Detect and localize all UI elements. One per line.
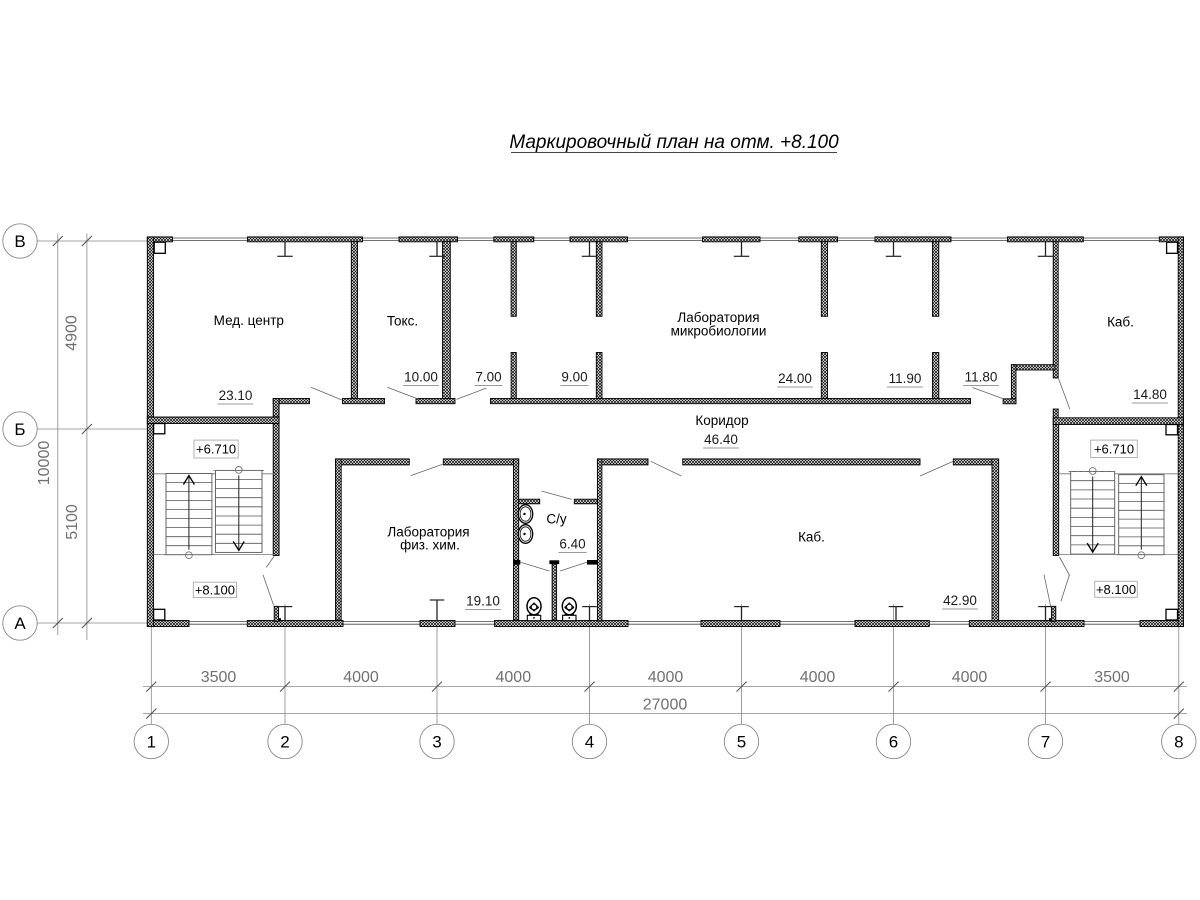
svg-text:4000: 4000 [800,669,836,686]
svg-text:А: А [14,614,26,633]
svg-text:2: 2 [280,733,289,752]
svg-text:14.80: 14.80 [1133,387,1167,402]
svg-text:Каб.: Каб. [798,530,825,545]
svg-text:Каб.: Каб. [1107,315,1134,330]
svg-text:11.80: 11.80 [965,370,998,385]
svg-text:1: 1 [147,733,156,752]
svg-text:+6.710: +6.710 [1094,441,1134,456]
svg-text:4000: 4000 [648,669,684,686]
svg-text:11.90: 11.90 [889,371,922,386]
svg-text:Токс.: Токс. [387,314,418,329]
svg-text:23.10: 23.10 [219,388,253,403]
svg-text:Маркировочный план на отм. +8.: Маркировочный план на отм. +8.100 [509,132,839,153]
svg-text:7.00: 7.00 [475,370,501,385]
svg-text:8: 8 [1174,733,1183,752]
svg-text:микробиологии: микробиологии [671,324,767,339]
svg-text:24.00: 24.00 [778,371,812,386]
svg-text:+6.710: +6.710 [196,442,236,457]
svg-text:Коридор: Коридор [695,413,748,428]
svg-text:7: 7 [1041,733,1050,752]
svg-text:6.40: 6.40 [559,537,585,552]
svg-text:4000: 4000 [343,669,379,686]
svg-text:Б: Б [14,420,25,439]
svg-text:+8.100: +8.100 [1096,582,1136,597]
svg-text:4000: 4000 [952,669,988,686]
svg-text:+8.100: +8.100 [195,583,235,598]
svg-text:19.10: 19.10 [466,594,500,609]
svg-text:3: 3 [432,733,441,752]
svg-text:4000: 4000 [496,669,532,686]
svg-text:46.40: 46.40 [704,432,738,447]
svg-text:физ. хим.: физ. хим. [400,538,460,553]
svg-text:Мед. центр: Мед. центр [214,313,284,328]
svg-text:27000: 27000 [643,697,688,714]
svg-text:4900: 4900 [64,315,81,351]
svg-text:5100: 5100 [64,504,81,540]
svg-text:9.00: 9.00 [561,370,587,385]
svg-text:4: 4 [585,733,594,752]
svg-text:10.00: 10.00 [404,370,438,385]
svg-text:5: 5 [737,733,746,752]
svg-text:10000: 10000 [36,441,53,486]
svg-text:3500: 3500 [1094,669,1130,686]
svg-text:С/у: С/у [546,512,567,527]
svg-text:В: В [14,232,25,251]
svg-text:6: 6 [889,733,898,752]
svg-text:42.90: 42.90 [943,593,977,608]
svg-text:3500: 3500 [201,669,237,686]
